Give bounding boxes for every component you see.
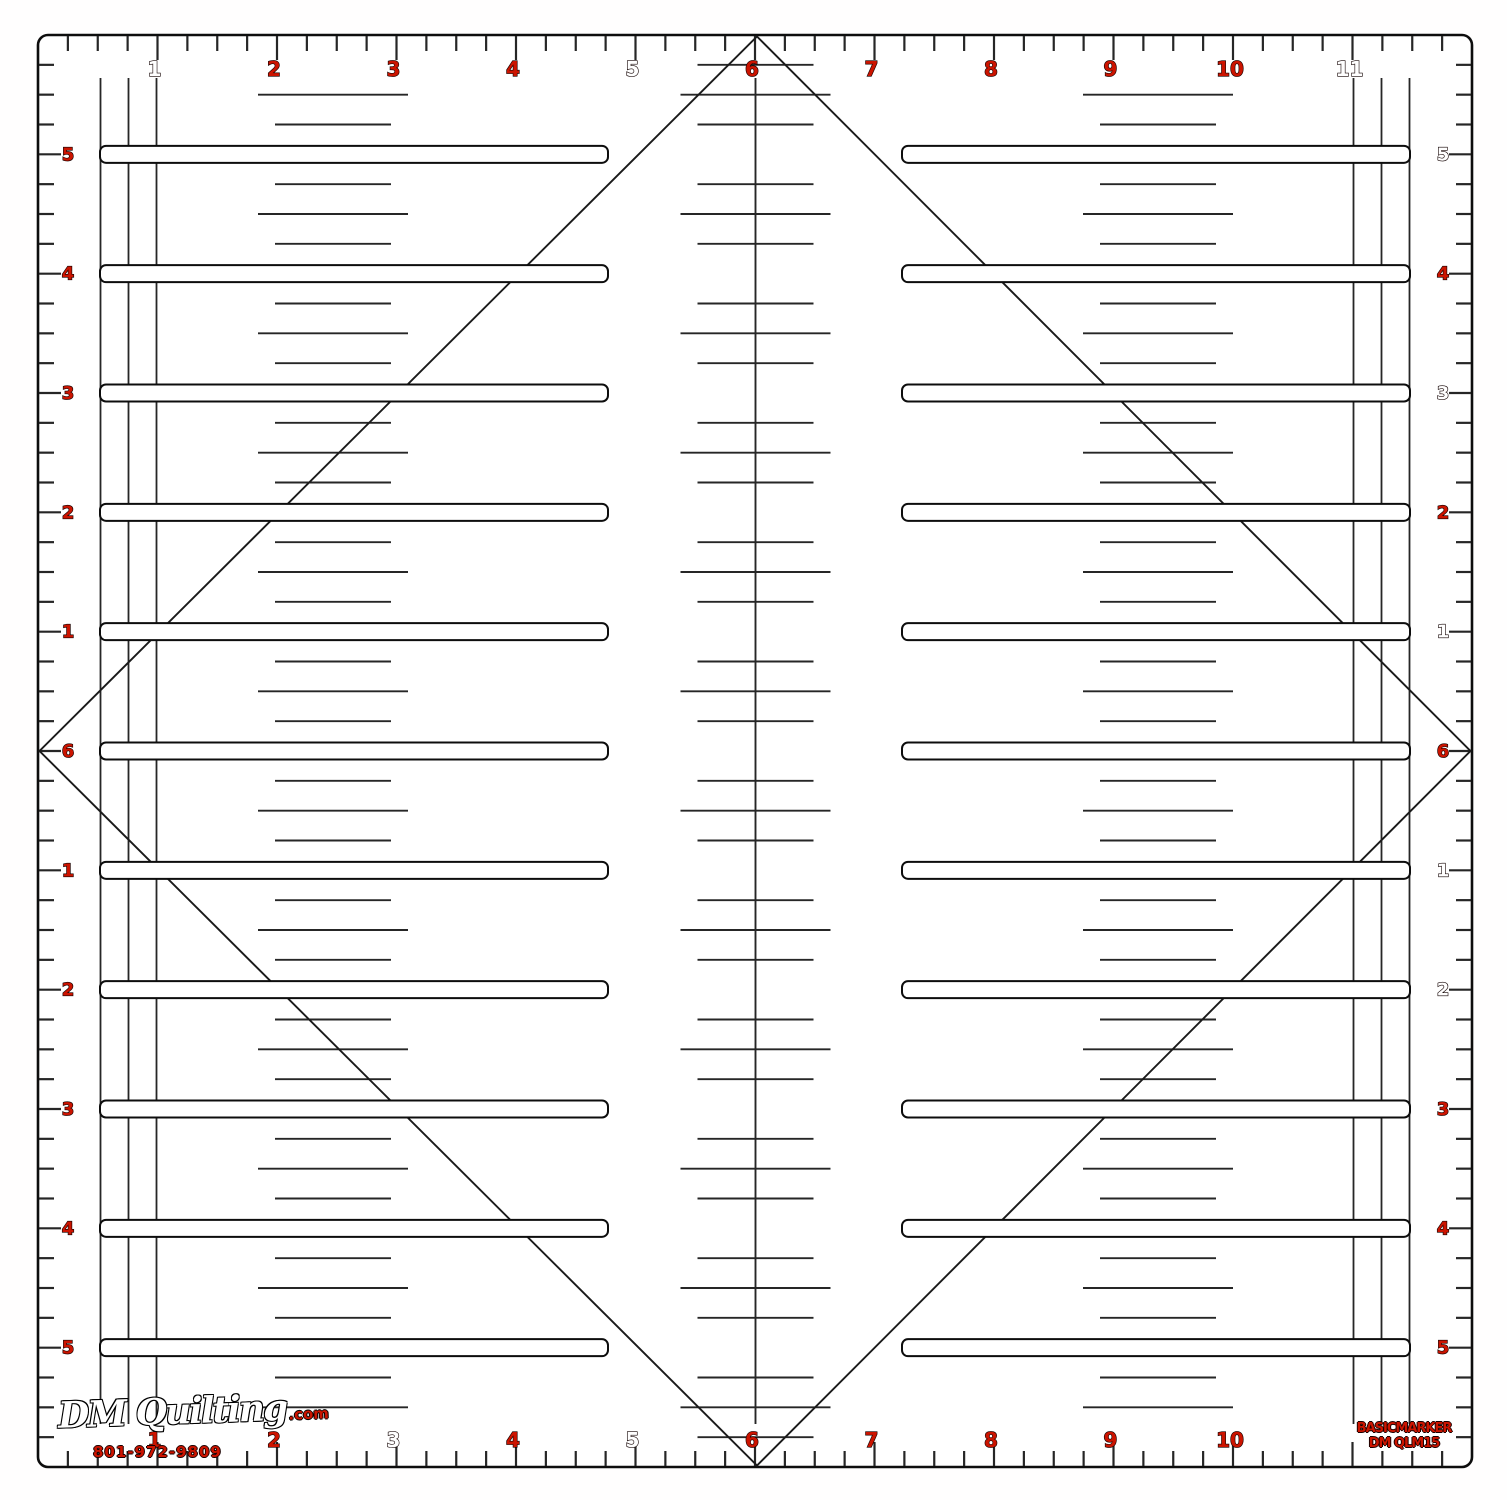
slot-left-row-9 <box>100 1101 608 1118</box>
quilting-ruler-scan: 1234567891011123456789105432161234554321… <box>0 0 1507 1500</box>
slot-right-row-2 <box>902 265 1410 282</box>
left-number-3: 3 <box>62 383 75 404</box>
slot-right-row-8 <box>902 981 1410 998</box>
top-number-7: 7 <box>865 57 879 81</box>
right-number-2: 2 <box>1437 502 1450 523</box>
bottom-number-2: 2 <box>267 1428 281 1452</box>
left-number-4: 4 <box>62 1218 75 1239</box>
bottom-number-5: 5 <box>626 1428 640 1452</box>
slot-right-row-9 <box>902 1101 1410 1118</box>
slot-right-row-3 <box>902 385 1410 402</box>
product-name: BASICMARKER <box>1352 1421 1456 1436</box>
right-number-3: 3 <box>1437 383 1450 404</box>
right-number-1: 1 <box>1437 860 1450 881</box>
slot-left-row-2 <box>100 265 608 282</box>
left-number-3: 3 <box>62 1099 75 1120</box>
left-number-5: 5 <box>62 144 75 165</box>
top-number-9: 9 <box>1104 57 1118 81</box>
right-number-4: 4 <box>1437 1218 1450 1239</box>
bottom-number-10: 10 <box>1216 1428 1244 1452</box>
slot-right-row-10 <box>902 1220 1410 1237</box>
right-number-5: 5 <box>1437 144 1450 165</box>
left-number-6: 6 <box>62 741 75 762</box>
slot-right-row-5 <box>902 623 1410 640</box>
left-number-1: 1 <box>62 622 75 643</box>
left-number-2: 2 <box>62 980 75 1001</box>
right-number-6: 6 <box>1437 741 1450 762</box>
top-number-6: 6 <box>745 57 759 81</box>
left-number-4: 4 <box>62 264 75 285</box>
slot-left-row-1 <box>100 146 608 163</box>
slot-right-row-6 <box>902 743 1410 760</box>
ruler-template-drawing: 1234567891011123456789105432161234554321… <box>0 0 1507 1500</box>
bottom-number-9: 9 <box>1104 1428 1118 1452</box>
bottom-number-8: 8 <box>984 1428 998 1452</box>
slot-left-row-6 <box>100 743 608 760</box>
bottom-number-3: 3 <box>387 1428 401 1452</box>
slot-left-row-3 <box>100 385 608 402</box>
right-number-3: 3 <box>1437 1099 1450 1120</box>
right-number-4: 4 <box>1437 264 1450 285</box>
top-number-8: 8 <box>984 57 998 81</box>
brand-phone-number: 801-972-9809 <box>93 1443 222 1461</box>
top-number-10: 10 <box>1216 57 1244 81</box>
slot-right-row-11 <box>902 1339 1410 1356</box>
product-code: DM QLM15 <box>1352 1436 1456 1451</box>
bottom-number-4: 4 <box>506 1428 520 1452</box>
slot-right-row-7 <box>902 862 1410 879</box>
bottom-number-7: 7 <box>865 1428 879 1452</box>
top-number-3: 3 <box>387 57 401 81</box>
slot-left-row-10 <box>100 1220 608 1237</box>
right-number-2: 2 <box>1437 980 1450 1001</box>
slot-left-row-8 <box>100 981 608 998</box>
top-number-5: 5 <box>626 57 640 81</box>
left-number-2: 2 <box>62 502 75 523</box>
top-number-11: 11 <box>1336 57 1364 81</box>
right-number-5: 5 <box>1437 1338 1450 1359</box>
slot-right-row-4 <box>902 504 1410 521</box>
product-label: BASICMARKER DM QLM15 <box>1352 1421 1456 1451</box>
brand-logo-text: DM Quilting <box>57 1387 286 1437</box>
top-number-4: 4 <box>506 57 520 81</box>
brand-logo-suffix: .com <box>288 1404 329 1423</box>
slot-right-row-1 <box>902 146 1410 163</box>
slot-left-row-4 <box>100 504 608 521</box>
left-number-1: 1 <box>62 860 75 881</box>
bottom-number-6: 6 <box>745 1428 759 1452</box>
slot-left-row-7 <box>100 862 608 879</box>
right-number-1: 1 <box>1437 622 1450 643</box>
slot-left-row-5 <box>100 623 608 640</box>
slot-left-row-11 <box>100 1339 608 1356</box>
left-number-5: 5 <box>62 1338 75 1359</box>
top-number-2: 2 <box>267 57 281 81</box>
top-number-1: 1 <box>148 57 162 81</box>
